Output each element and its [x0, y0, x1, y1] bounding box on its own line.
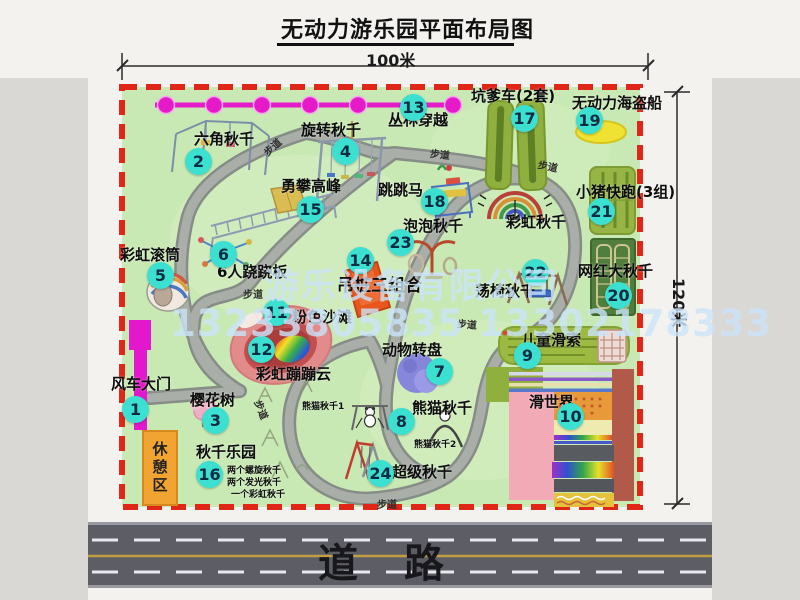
height-dimension-label: 120米 [668, 278, 692, 327]
label-rainbow-swing: 彩虹秋千 [506, 215, 566, 231]
width-dimension-label: 100米 [366, 47, 415, 71]
label-big-swing: 网红大秋千 [578, 264, 653, 280]
attraction-number-12: 12 [248, 336, 275, 363]
attraction-number-10: 10 [557, 403, 584, 430]
attraction-number-7: 7 [426, 358, 453, 385]
attraction-number-8: 8 [388, 408, 415, 435]
attraction-number-15: 15 [297, 196, 324, 223]
rest-area-box: 休憩区 [142, 430, 178, 506]
attraction-number-24: 24 [367, 460, 394, 487]
attraction-number-21: 21 [588, 198, 615, 225]
attraction-number-17: 17 [511, 105, 538, 132]
label-piggy-run: 小猪快跑(3组) [576, 185, 675, 201]
attraction-number-19: 19 [576, 107, 603, 134]
attraction-number-18: 18 [421, 188, 448, 215]
attraction-number-4: 4 [332, 138, 359, 165]
label-hanging-post-combo: 吊桩三组合 [337, 278, 422, 296]
label-hexagon-swing: 六角秋千 [194, 132, 254, 148]
attraction-number-16: 16 [196, 461, 223, 488]
attraction-number-5: 5 [147, 262, 174, 289]
attraction-number-14: 14 [347, 247, 374, 274]
trail-label-5: 步道 [457, 315, 478, 331]
label-panda-swing: 熊猫秋千 [412, 401, 472, 417]
swing-park-note-1: 两个螺旋秋千 [227, 467, 281, 476]
label-rainbow-drum: 彩虹滚筒 [120, 248, 180, 264]
swing-park-note-2: 两个发光秋千 [227, 479, 281, 488]
park-layout-map: 无动力游乐园平面布局图 100米 120米 风车大门 六角秋千 樱花树 旋转秋千… [0, 0, 800, 600]
attraction-number-11: 11 [263, 299, 290, 326]
label-climbing-peak: 勇攀高峰 [281, 179, 341, 195]
label-bubble-swing: 泡泡秋千 [403, 219, 463, 235]
label-pit-cart: 坑爹车(2套) [471, 89, 555, 105]
page-title: 无动力游乐园平面布局图 [281, 12, 534, 44]
attraction-number-3: 3 [202, 407, 229, 434]
road-label: 道路 [318, 531, 490, 589]
label-bounce-cloud: 彩虹蹦蹦云 [256, 367, 331, 383]
attraction-number-9: 9 [514, 342, 541, 369]
attraction-number-22: 22 [522, 259, 549, 286]
trail-label-4: 步道 [243, 286, 263, 301]
swing-park-note-3: 一个彩虹秋千 [231, 491, 285, 500]
label-panda-swing-1: 熊猫秋千1 [302, 403, 344, 412]
title-underline [277, 43, 514, 46]
trail-label-2: 步道 [429, 145, 450, 162]
attraction-number-1: 1 [122, 396, 149, 423]
attraction-number-20: 20 [605, 282, 632, 309]
trail-label-6: 步道 [377, 496, 397, 511]
label-animal-carousel: 动物转盘 [382, 343, 442, 359]
attraction-number-23: 23 [387, 229, 414, 256]
label-windmill-gate: 风车大门 [111, 377, 171, 393]
label-pink-beach: 粉色沙滩 [292, 310, 352, 326]
attraction-number-2: 2 [185, 148, 212, 175]
label-swing-park: 秋千乐园 [196, 445, 256, 461]
attraction-number-13: 13 [400, 94, 427, 121]
label-rotating-swing: 旋转秋千 [301, 123, 361, 139]
label-jumping-horse: 跳跳马 [378, 183, 423, 199]
label-super-swing: 超级秋千 [392, 465, 452, 481]
label-panda-swing-2: 熊猫秋千2 [414, 441, 456, 450]
label-swing-chair: 荡椅秋千 [475, 284, 535, 300]
attraction-number-6: 6 [210, 241, 237, 268]
